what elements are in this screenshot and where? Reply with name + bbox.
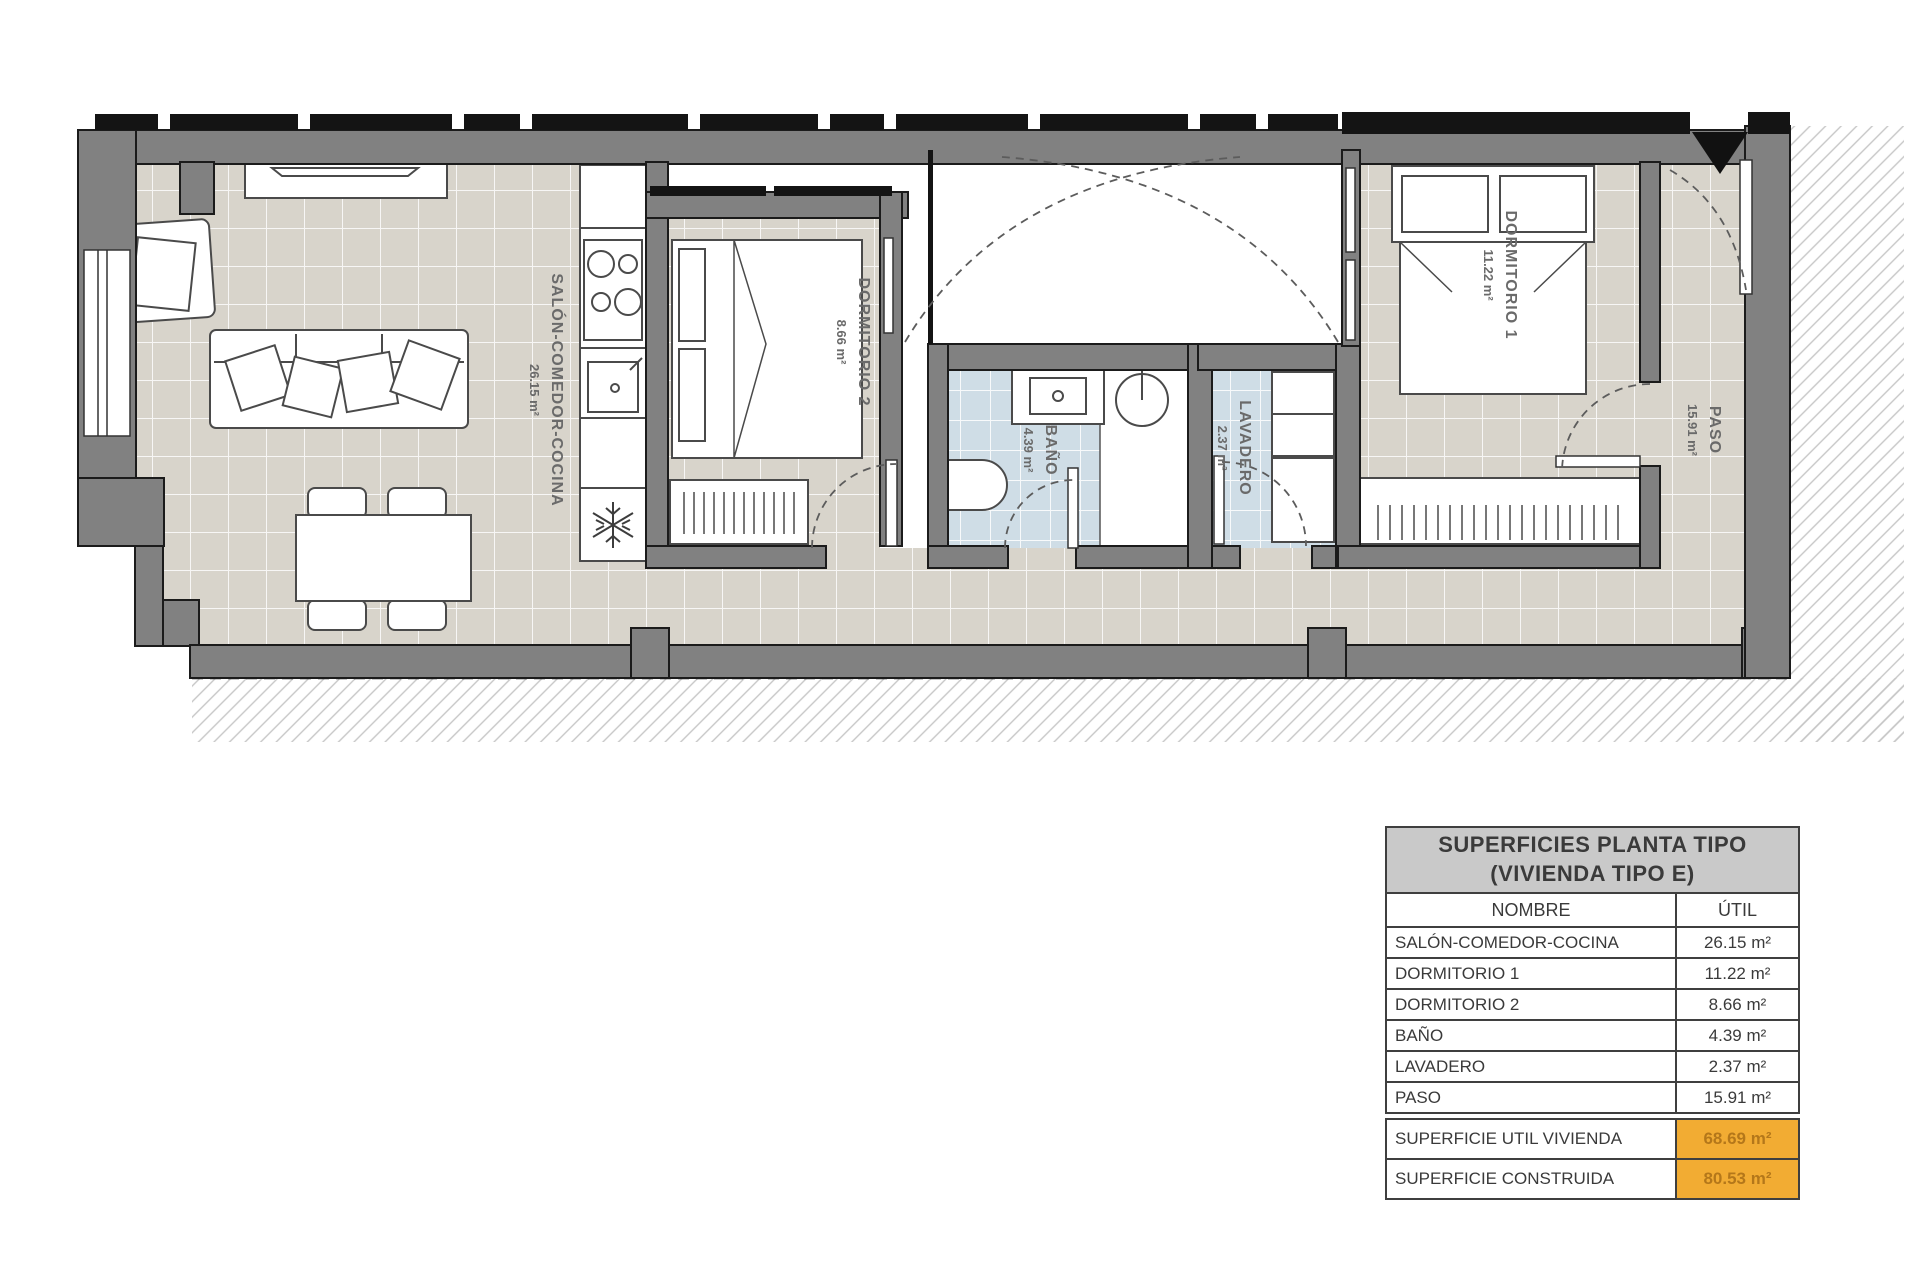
column-living	[180, 162, 214, 214]
floor-patio	[902, 156, 1342, 344]
lavadero-fixtures	[1272, 372, 1334, 542]
table-row: BAÑO 4.39 m²	[1386, 1020, 1799, 1051]
label-salon: SALÓN-COMEDOR-COCINA	[548, 273, 567, 506]
room-area: 8.66 m²	[1676, 989, 1799, 1020]
sofa	[210, 330, 468, 428]
door-leaf-entrance	[1740, 160, 1752, 294]
bed-double-bedroom2	[672, 240, 862, 458]
patio-wall-line	[928, 150, 933, 344]
kitchen-counter	[580, 165, 646, 561]
cooktop-icon	[584, 240, 642, 340]
floor-plan-sheet: SALÓN-COMEDOR-COCINA 26.15 m² DORMITORIO…	[0, 0, 1920, 1280]
sink-icon	[588, 358, 642, 412]
floor-paso	[1660, 162, 1745, 645]
pilaster	[631, 628, 669, 678]
areas-table-title: SUPERFICIES PLANTA TIPO(VIVIENDA TIPO E)	[1386, 827, 1799, 893]
room-area: 4.39 m²	[1676, 1020, 1799, 1051]
wardrobe-bedroom2	[670, 480, 808, 544]
table-row: PASO 15.91 m²	[1386, 1082, 1799, 1113]
label-lavadero: LAVADERO	[1236, 400, 1253, 495]
window-bedroom2-patio	[884, 238, 893, 333]
wardrobe-bedroom1	[1360, 478, 1640, 544]
label-dormitorio2-area: 8.66 m²	[834, 320, 849, 365]
table-row: DORMITORIO 1 11.22 m²	[1386, 958, 1799, 989]
total-label: SUPERFICIE CONSTRUIDA	[1386, 1159, 1676, 1199]
window-bedroom1-patio	[1346, 168, 1355, 252]
room-name: SALÓN-COMEDOR-COCINA	[1386, 927, 1676, 958]
label-dormitorio1: DORMITORIO 1	[1502, 210, 1519, 339]
label-bano: BAÑO	[1042, 424, 1062, 475]
room-area: 26.15 m²	[1676, 927, 1799, 958]
totals-table: SUPERFICIE UTIL VIVIENDA 68.69 m² SUPERF…	[1385, 1118, 1800, 1200]
room-name: BAÑO	[1386, 1020, 1676, 1051]
toilet-icon	[948, 460, 1007, 510]
door-leaf-bedroom1	[1556, 456, 1640, 467]
room-area: 11.22 m²	[1676, 958, 1799, 989]
label-lavadero-area: 2.37 m²	[1215, 426, 1230, 471]
label-bano-area: 4.39 m²	[1021, 428, 1036, 473]
label-paso: PASO	[1706, 406, 1723, 454]
room-area: 15.91 m²	[1676, 1082, 1799, 1113]
column-header-nombre: NOMBRE	[1386, 893, 1676, 927]
window-living-left	[84, 250, 130, 436]
table-row: DORMITORIO 2 8.66 m²	[1386, 989, 1799, 1020]
room-name: DORMITORIO 2	[1386, 989, 1676, 1020]
room-area: 2.37 m²	[1676, 1051, 1799, 1082]
floor-doorway-bedroom1	[1640, 382, 1660, 470]
areas-table: SUPERFICIES PLANTA TIPO(VIVIENDA TIPO E)…	[1385, 826, 1800, 1114]
room-name: DORMITORIO 1	[1386, 958, 1676, 989]
door-leaf-bedroom2	[886, 460, 897, 546]
window-bedroom1-patio	[1346, 260, 1355, 340]
table-row: SUPERFICIE UTIL VIVIENDA 68.69 m²	[1386, 1119, 1799, 1159]
table-row: SALÓN-COMEDOR-COCINA 26.15 m²	[1386, 927, 1799, 958]
tv-icon	[272, 168, 418, 176]
table-row: SUPERFICIE CONSTRUIDA 80.53 m²	[1386, 1159, 1799, 1199]
total-value-construida: 80.53 m²	[1676, 1159, 1799, 1199]
room-name: LAVADERO	[1386, 1051, 1676, 1082]
total-label: SUPERFICIE UTIL VIVIENDA	[1386, 1119, 1676, 1159]
total-value-util: 68.69 m²	[1676, 1119, 1799, 1159]
label-dormitorio2: DORMITORIO 2	[855, 277, 872, 406]
pilaster	[1308, 628, 1346, 678]
label-salon-area: 26.15 m²	[527, 364, 542, 417]
table-row: LAVADERO 2.37 m²	[1386, 1051, 1799, 1082]
laundry-sink-unit	[1272, 458, 1334, 542]
label-paso-area: 15.91 m²	[1685, 404, 1700, 457]
column-header-util: ÚTIL	[1676, 893, 1799, 927]
label-dormitorio1-area: 11.22 m²	[1481, 249, 1496, 301]
room-name: PASO	[1386, 1082, 1676, 1113]
